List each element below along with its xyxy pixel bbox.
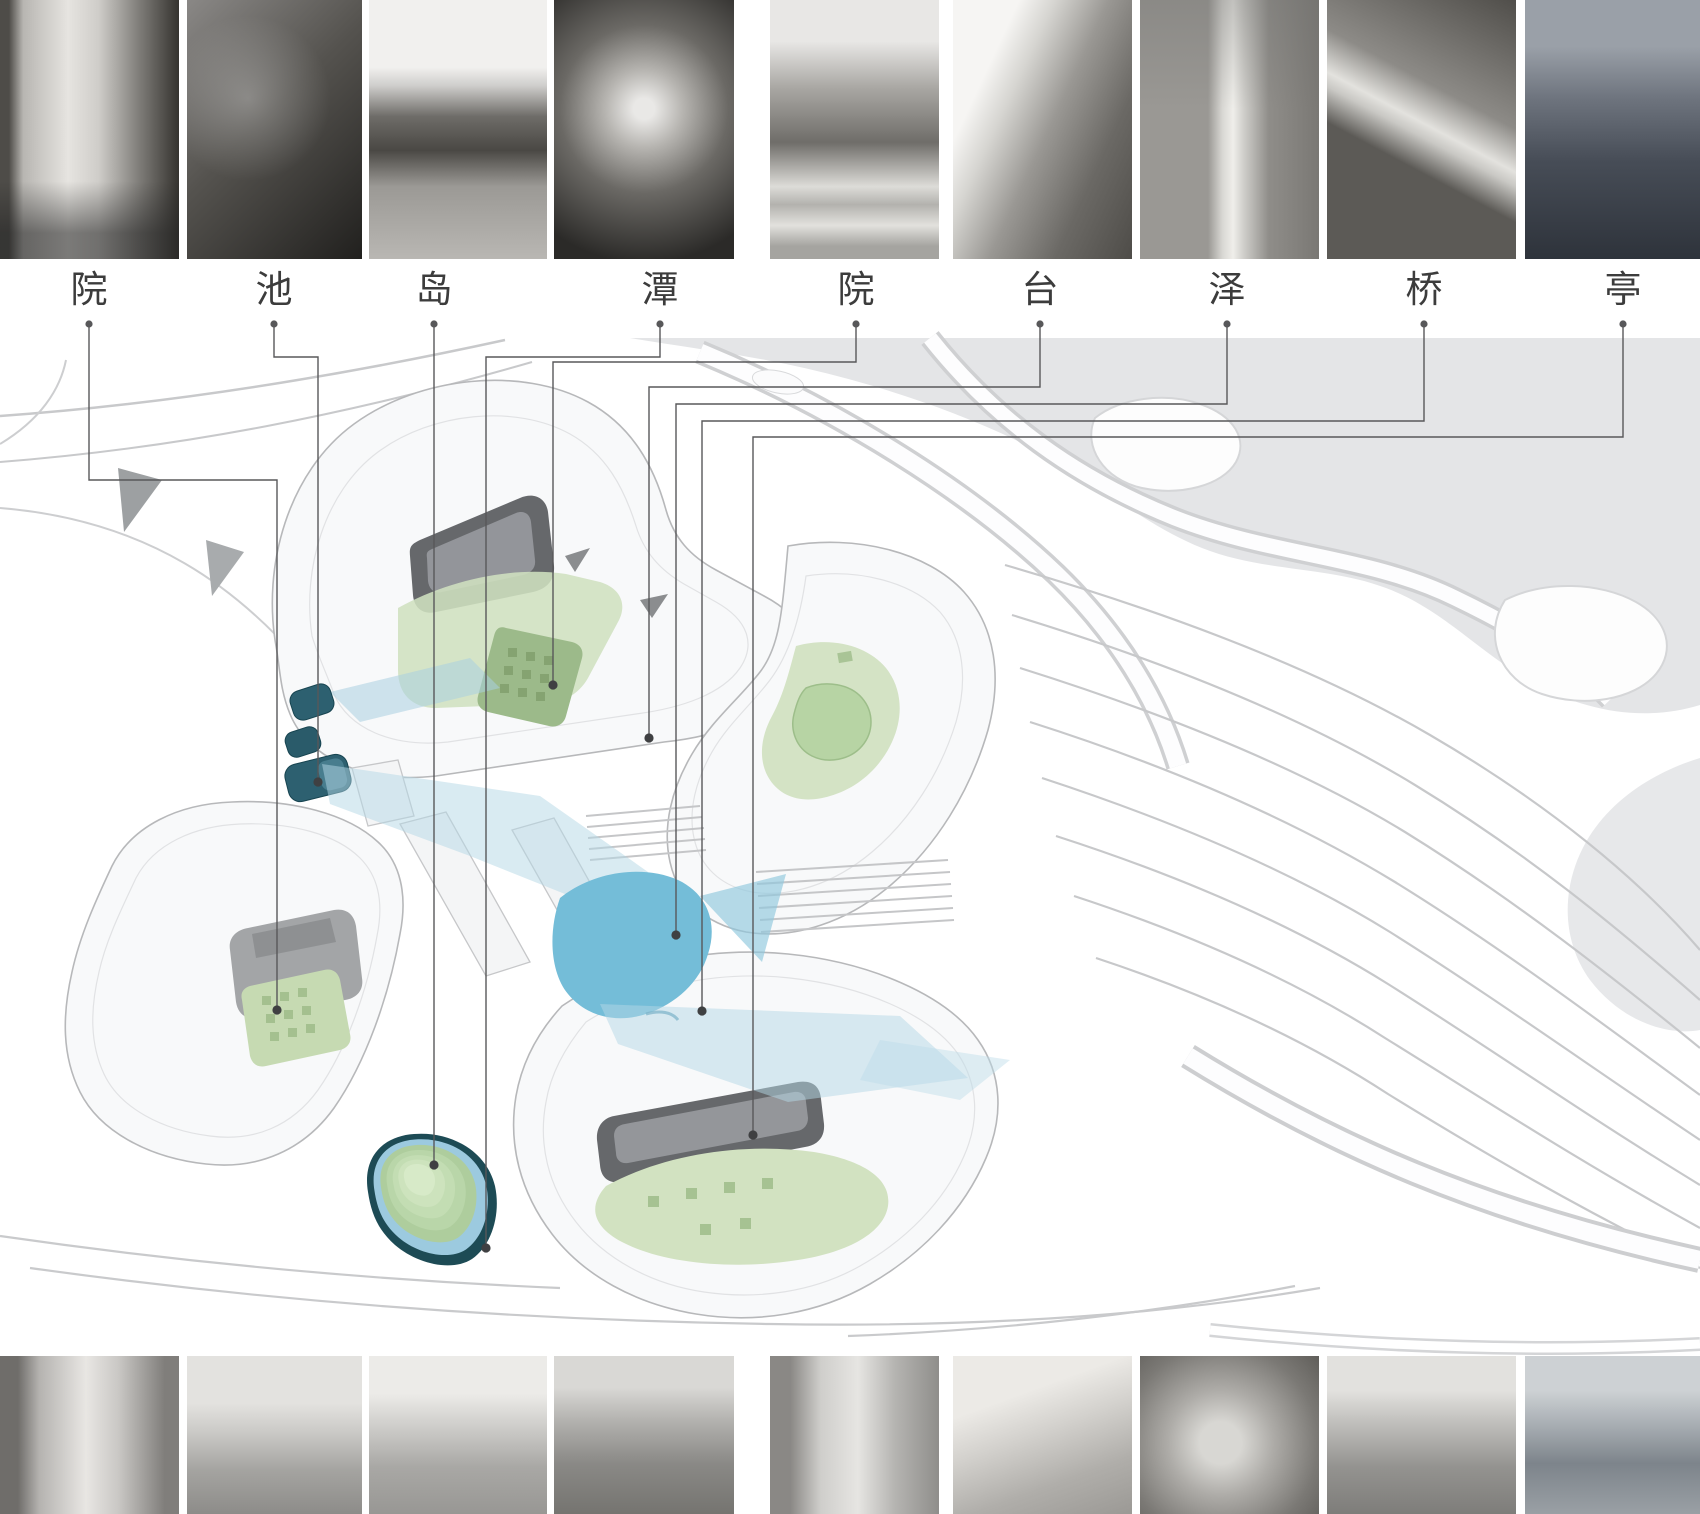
top-photo-pond: [187, 0, 362, 259]
label-pavilion: 亭: [1587, 270, 1659, 310]
top-photo-terrace: [953, 0, 1132, 259]
bottom-photo-garden-pond: [187, 1356, 362, 1514]
bottom-photo-veranda: [770, 1356, 939, 1514]
bottom-photo-waterfall: [554, 1356, 734, 1514]
bottom-photo-rockery: [369, 1356, 547, 1514]
diagram-board: 院 池 岛 潭 院 台 泽 桥 亭: [0, 0, 1700, 1514]
bottom-photo-lake-pavilion: [1525, 1356, 1700, 1514]
label-bridge: 桥: [1388, 270, 1460, 310]
label-deep-pool: 潭: [624, 270, 696, 310]
label-courtyard-2: 院: [820, 270, 892, 310]
leader-start-dots: [85, 320, 1626, 327]
terrace-road-bands: [1188, 1056, 1700, 1348]
label-terrace: 台: [1004, 270, 1076, 310]
label-courtyard-1: 院: [53, 270, 125, 310]
top-photo-bridge: [1327, 0, 1516, 259]
top-photo-courtyard-2: [770, 0, 939, 259]
top-photo-courtyard: [0, 0, 179, 259]
building-left-block: [65, 802, 403, 1165]
bottom-photo-steps: [953, 1356, 1132, 1514]
top-photo-marsh: [1140, 0, 1319, 259]
teardrop-island: [367, 1134, 497, 1266]
top-photo-island: [369, 0, 547, 259]
label-marsh: 泽: [1191, 270, 1263, 310]
top-photo-deep-pool: [554, 0, 734, 259]
label-pond: 池: [238, 270, 310, 310]
bottom-photo-alley: [0, 1356, 179, 1514]
label-island: 岛: [398, 270, 470, 310]
bottom-photo-lotus: [1140, 1356, 1319, 1514]
bottom-photo-corridor-bridge: [1327, 1356, 1516, 1514]
top-photo-pavilion: [1525, 0, 1700, 259]
